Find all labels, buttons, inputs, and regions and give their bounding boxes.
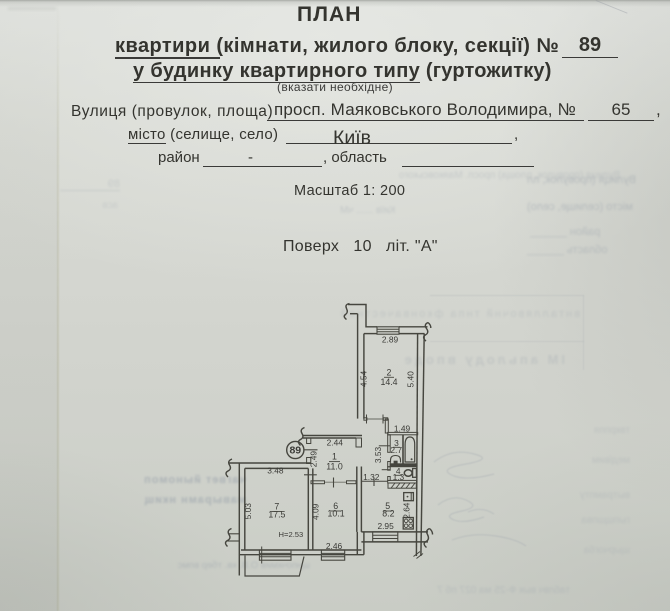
svg-text:2.64: 2.64 xyxy=(402,502,411,518)
svg-text:2.46: 2.46 xyxy=(326,541,343,551)
svg-text:10.1: 10.1 xyxy=(328,508,345,518)
svg-text:1.3: 1.3 xyxy=(393,472,405,482)
svg-text:3.48: 3.48 xyxy=(267,466,284,476)
svg-text:4.54: 4.54 xyxy=(359,371,369,388)
svg-text:14.4: 14.4 xyxy=(380,377,397,387)
svg-text:2: 2 xyxy=(387,367,392,377)
svg-text:2.7: 2.7 xyxy=(390,445,402,455)
svg-text:3.53: 3.53 xyxy=(373,447,383,464)
svg-text:2.49: 2.49 xyxy=(309,451,319,468)
svg-text:1.32: 1.32 xyxy=(363,472,380,482)
svg-text:2.89: 2.89 xyxy=(382,335,399,345)
svg-text:2.44: 2.44 xyxy=(327,437,344,447)
svg-text:1.49: 1.49 xyxy=(394,423,411,433)
svg-text:4.09: 4.09 xyxy=(310,503,320,520)
svg-text:8.2: 8.2 xyxy=(382,508,394,518)
svg-text:H=2.53: H=2.53 xyxy=(279,530,304,539)
svg-text:5.40: 5.40 xyxy=(406,371,416,388)
svg-text:5.03: 5.03 xyxy=(243,503,253,520)
svg-text:89: 89 xyxy=(289,445,301,457)
svg-text:1: 1 xyxy=(332,452,337,462)
svg-text:2.95: 2.95 xyxy=(377,521,394,531)
svg-text:11.0: 11.0 xyxy=(326,461,343,471)
